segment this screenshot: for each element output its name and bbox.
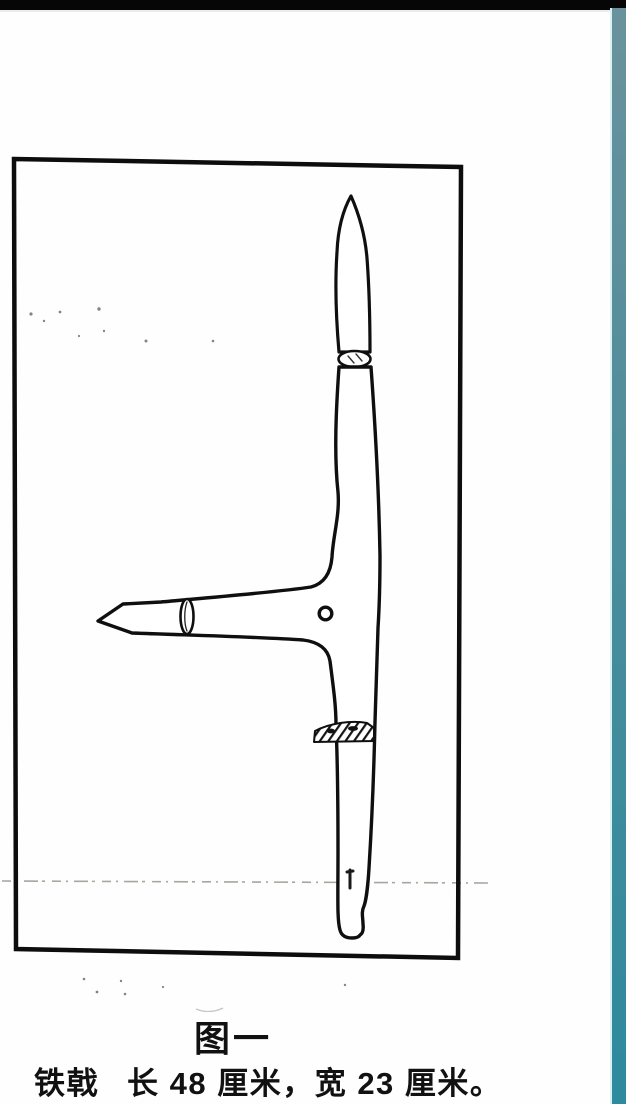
rivet-hole [319,607,332,620]
page-edge-strip [610,8,626,1104]
halberd-top-spike-blade [336,196,370,352]
figure-border-box [14,159,461,958]
window-top-bar [0,0,626,12]
figure-caption: 图一 [0,1010,466,1062]
scan-artifact-dashed-line [2,881,489,883]
halberd-lower-socket-band [314,722,374,742]
artifact-name-label: 铁戟 [34,1066,99,1101]
figure-description: 铁戟长 48 厘米，宽 23 厘米。 [34,1058,502,1103]
halberd-drawing [98,196,380,938]
halberd-body-outline [98,367,380,938]
artifact-dimensions-label: 长 48 厘米，宽 23 厘米。 [127,1066,502,1101]
scan-noise-specks [29,307,346,1011]
iron-halberd-figure-drawing [0,140,500,1012]
cross-blade-collar-band [181,599,194,634]
halberd-upper-socket-band [339,351,371,367]
scanned-document-page: 图一 铁戟长 48 厘米，宽 23 厘米。 [0,0,626,1104]
